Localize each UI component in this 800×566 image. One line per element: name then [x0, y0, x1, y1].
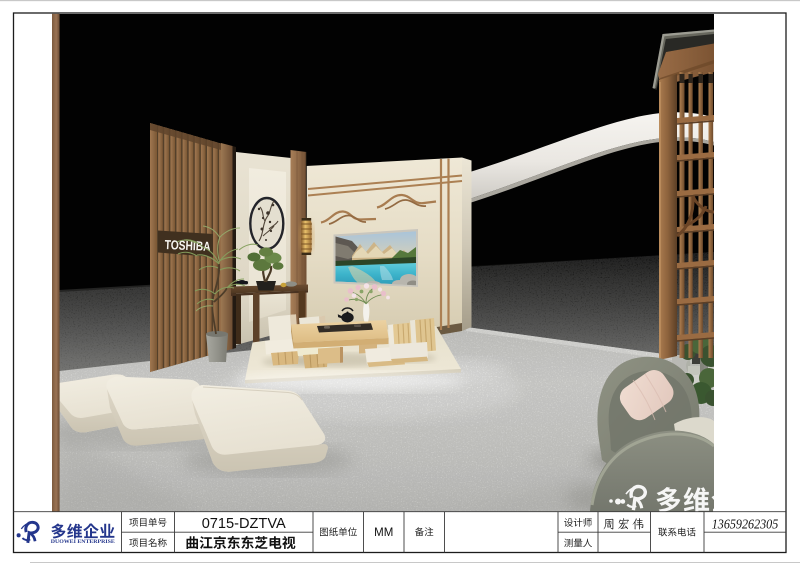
svg-text:MM: MM: [374, 527, 393, 539]
svg-text:DUOWEI ENTERPRISE: DUOWEI ENTERPRISE: [51, 539, 116, 545]
svg-text:13659262305: 13659262305: [712, 516, 779, 531]
svg-text:0715-DZTVA: 0715-DZTVA: [202, 515, 287, 532]
